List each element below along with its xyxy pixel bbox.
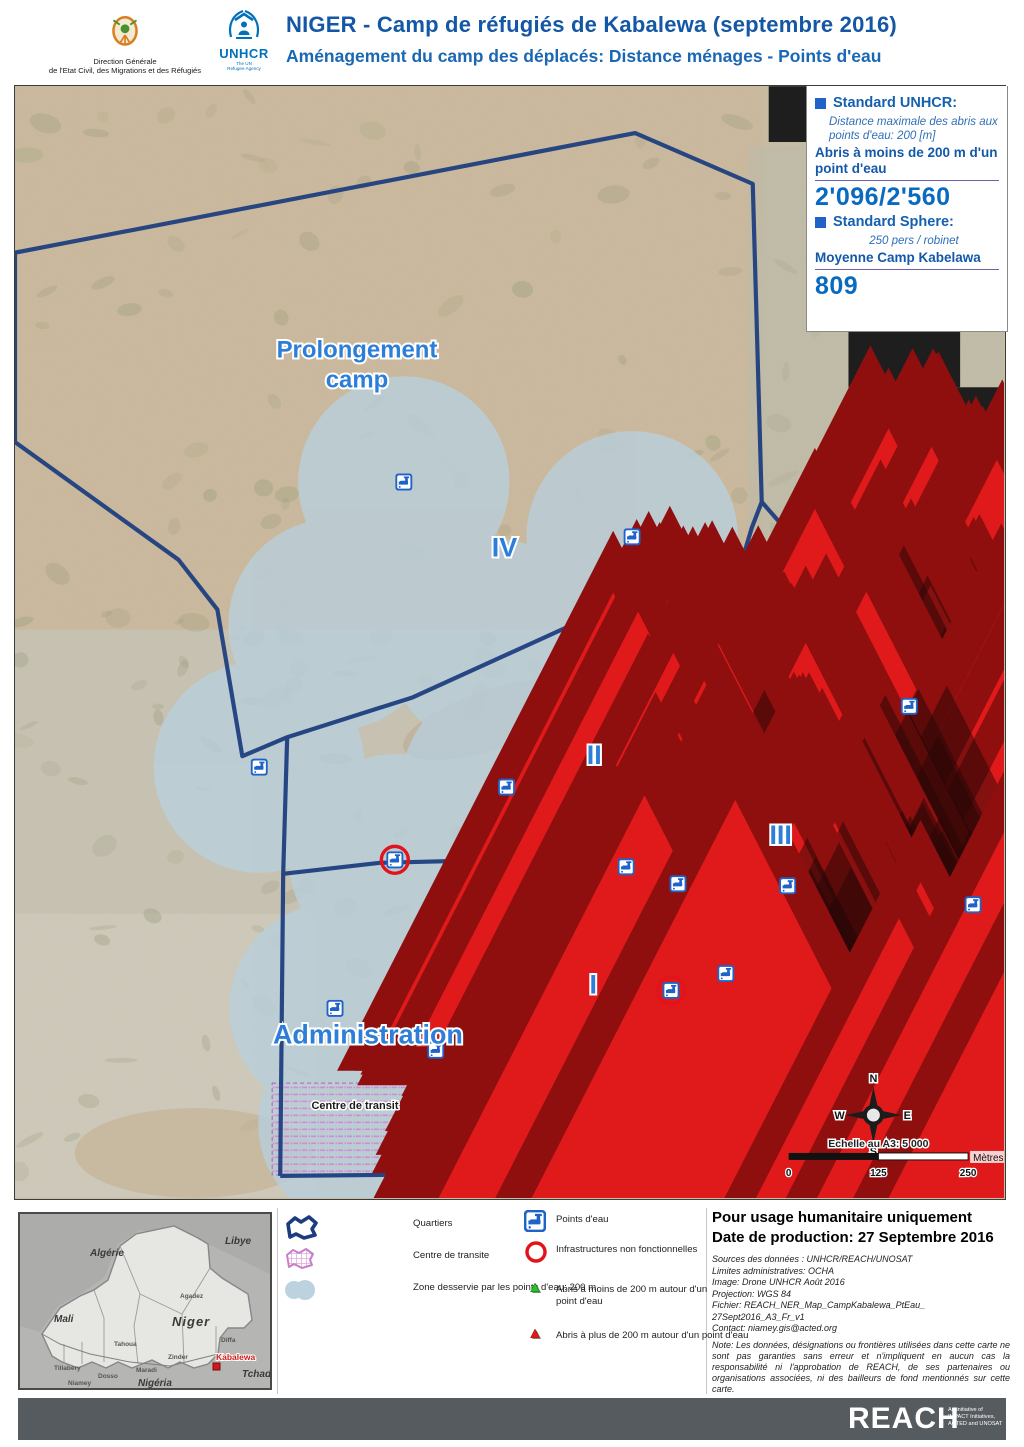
buffer-zone-icon bbox=[282, 1278, 318, 1302]
reach-tagline-line: An initiative of bbox=[948, 1407, 1002, 1414]
credits-meta-line: Contact: niamey.gis@acted.org bbox=[712, 1323, 1010, 1335]
legend-abris-moins-200-label: Abris à moins de 200 m autour d'un point… bbox=[556, 1284, 726, 1307]
svg-text:IV: IV bbox=[492, 533, 517, 563]
unhcr-tagline: The UN Refugee Agency bbox=[215, 61, 273, 72]
standard-unhcr-note: Distance maximale des abris aux points d… bbox=[829, 115, 999, 143]
svg-text:Dosso: Dosso bbox=[98, 1373, 118, 1380]
legend-zone-desservie: Zone desservie par les points d'eau: 200… bbox=[282, 1278, 318, 1307]
niger-coat-of-arms-icon bbox=[103, 12, 147, 54]
bullet-square-icon bbox=[815, 98, 826, 109]
credits-meta-line: Limites administratives: OCHA bbox=[712, 1266, 1010, 1278]
stats-panel: Standard UNHCR: Distance maximale des ab… bbox=[806, 86, 1008, 332]
left-agency-name: Direction Générale de l'Etat Civil, des … bbox=[10, 57, 240, 75]
svg-text:Diffa: Diffa bbox=[221, 1337, 236, 1344]
svg-text:camp: camp bbox=[326, 366, 388, 393]
divider bbox=[277, 1208, 278, 1394]
legend-quartiers: Quartiers bbox=[284, 1214, 320, 1247]
svg-text:Nigéria: Nigéria bbox=[138, 1378, 172, 1388]
svg-text:Centre de transit: Centre de transit bbox=[311, 1100, 398, 1112]
unhcr-wordmark: UNHCR bbox=[215, 46, 273, 61]
credits-note: Note: Les données, désignations ou front… bbox=[712, 1340, 1010, 1395]
map-sheet: Direction Générale de l'Etat Civil, des … bbox=[0, 0, 1024, 1447]
svg-text:250: 250 bbox=[960, 1168, 977, 1179]
bullet-square-icon bbox=[815, 217, 826, 228]
svg-text:Echelle au A3: 5 000: Echelle au A3: 5 000 bbox=[828, 1139, 928, 1150]
legend-infrastructures-nf: Infrastructures non fonctionnelles bbox=[524, 1240, 548, 1269]
credits-meta-line: 27Sept2016_A3_Fr_v1 bbox=[712, 1312, 1010, 1324]
legend-abris-moins-200: Abris à moins de 200 m autour d'un point… bbox=[526, 1280, 544, 1301]
divider bbox=[815, 269, 999, 270]
credits-meta: Sources des données : UNHCR/REACH/UNOSAT… bbox=[712, 1254, 1010, 1335]
metric1-value: 2'096/2'560 bbox=[815, 183, 999, 212]
svg-text:Mètres: Mètres bbox=[973, 1153, 1003, 1164]
quartier-polygon-icon bbox=[284, 1214, 320, 1242]
credits-meta-line: Projection: WGS 84 bbox=[712, 1289, 1010, 1301]
svg-text:Niger: Niger bbox=[172, 1314, 210, 1329]
svg-text:Niamey: Niamey bbox=[68, 1380, 92, 1387]
svg-text:III: III bbox=[769, 820, 791, 850]
svg-text:0: 0 bbox=[786, 1168, 792, 1179]
red-shelter-icon bbox=[526, 1326, 544, 1342]
svg-text:Tahoua: Tahoua bbox=[114, 1341, 137, 1348]
unhcr-emblem-icon bbox=[224, 6, 264, 46]
svg-text:Algérie: Algérie bbox=[89, 1248, 124, 1259]
metric1-label: Abris à moins de 200 m d'un point d'eau bbox=[815, 145, 999, 177]
svg-text:Tillabery: Tillabery bbox=[54, 1365, 81, 1372]
svg-text:Zinder: Zinder bbox=[168, 1354, 188, 1361]
unhcr-logo: UNHCR The UN Refugee Agency bbox=[215, 6, 273, 72]
svg-text:W: W bbox=[834, 1110, 845, 1122]
svg-text:Maradi: Maradi bbox=[136, 1367, 157, 1374]
page-subtitle: Aménagement du camp des déplacés: Distan… bbox=[286, 46, 881, 67]
reach-logo: REACH bbox=[848, 1402, 960, 1436]
legend-centre-transit: Centre de transite bbox=[284, 1246, 316, 1277]
standard-sphere-note: 250 pers / robinet bbox=[829, 234, 999, 248]
divider bbox=[815, 180, 999, 181]
location-inset-map: LibyeAlgérieMaliNigerNigériaTchadAgadezT… bbox=[18, 1212, 272, 1390]
reach-tagline: An initiative ofIMPACT Initiatives,ACTED… bbox=[948, 1407, 1002, 1428]
page-title: NIGER - Camp de réfugiés de Kabalewa (se… bbox=[286, 12, 897, 38]
standard-unhcr-heading: Standard UNHCR: bbox=[833, 95, 957, 111]
metric2-label: Moyenne Camp Kabelawa bbox=[815, 250, 999, 266]
svg-text:Administration: Administration bbox=[273, 1019, 463, 1049]
svg-text:I: I bbox=[590, 969, 597, 999]
production-date-line: Date de production: 27 Septembre 2016 bbox=[712, 1228, 1010, 1248]
svg-text:Prolongement: Prolongement bbox=[277, 336, 438, 363]
svg-text:Agadez: Agadez bbox=[180, 1293, 204, 1300]
water-point-icon bbox=[524, 1210, 546, 1232]
credits-meta-line: Image: Drone UNHCR Août 2016 bbox=[712, 1277, 1010, 1289]
nonfunctional-circle-icon bbox=[524, 1240, 548, 1264]
reach-tagline-line: ACTED and UNOSAT bbox=[948, 1421, 1002, 1428]
legend-abris-plus-200: Abris à plus de 200 m autour d'un point … bbox=[526, 1326, 544, 1347]
green-shelter-icon bbox=[526, 1280, 544, 1296]
svg-text:Libye: Libye bbox=[225, 1236, 252, 1247]
svg-text:N: N bbox=[869, 1073, 877, 1085]
svg-text:Tchad: Tchad bbox=[242, 1369, 270, 1380]
svg-text:Kabalewa: Kabalewa bbox=[216, 1352, 255, 1362]
transit-polygon-icon bbox=[284, 1246, 316, 1272]
credits-block: Pour usage humanitaire uniquement Date d… bbox=[712, 1208, 1010, 1395]
reach-tagline-line: IMPACT Initiatives, bbox=[948, 1414, 1002, 1421]
svg-text:II: II bbox=[587, 740, 602, 770]
credits-meta-line: Fichier: REACH_NER_Map_CampKabalewa_PtEa… bbox=[712, 1300, 1010, 1312]
svg-text:125: 125 bbox=[870, 1168, 887, 1179]
metric2-value: 809 bbox=[815, 272, 999, 301]
standard-sphere-heading: Standard Sphere: bbox=[833, 214, 954, 230]
legend-points-eau: Points d'eau bbox=[524, 1210, 546, 1237]
credits-meta-line: Sources des données : UNHCR/REACH/UNOSAT bbox=[712, 1254, 1010, 1266]
usage-line: Pour usage humanitaire uniquement bbox=[712, 1208, 1010, 1228]
svg-text:Mali: Mali bbox=[54, 1314, 74, 1325]
svg-text:E: E bbox=[904, 1110, 911, 1122]
left-agency-block: Direction Générale de l'Etat Civil, des … bbox=[10, 12, 240, 75]
